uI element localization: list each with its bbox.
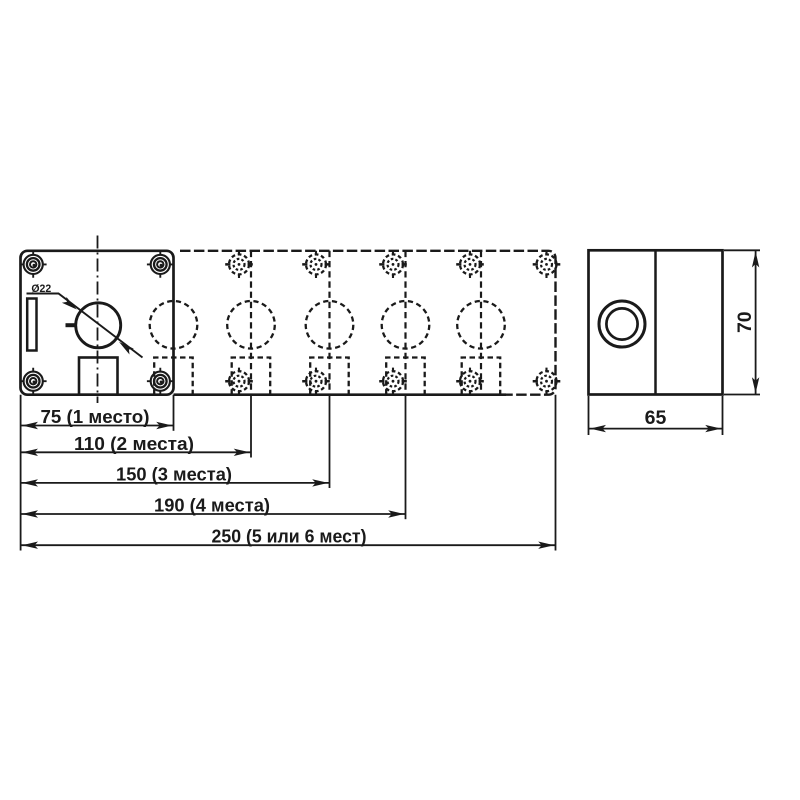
svg-text:70: 70 <box>734 311 756 333</box>
svg-text:65: 65 <box>645 407 667 429</box>
svg-text:150 (3 места): 150 (3 места) <box>116 463 232 484</box>
svg-text:Ø22: Ø22 <box>31 283 51 295</box>
svg-text:75 (1 место): 75 (1 место) <box>41 406 150 427</box>
svg-text:190 (4 места): 190 (4 места) <box>154 495 270 516</box>
svg-text:110 (2 места): 110 (2 места) <box>74 433 194 454</box>
svg-text:250 (5 или 6 мест): 250 (5 или 6 мест) <box>212 526 367 547</box>
